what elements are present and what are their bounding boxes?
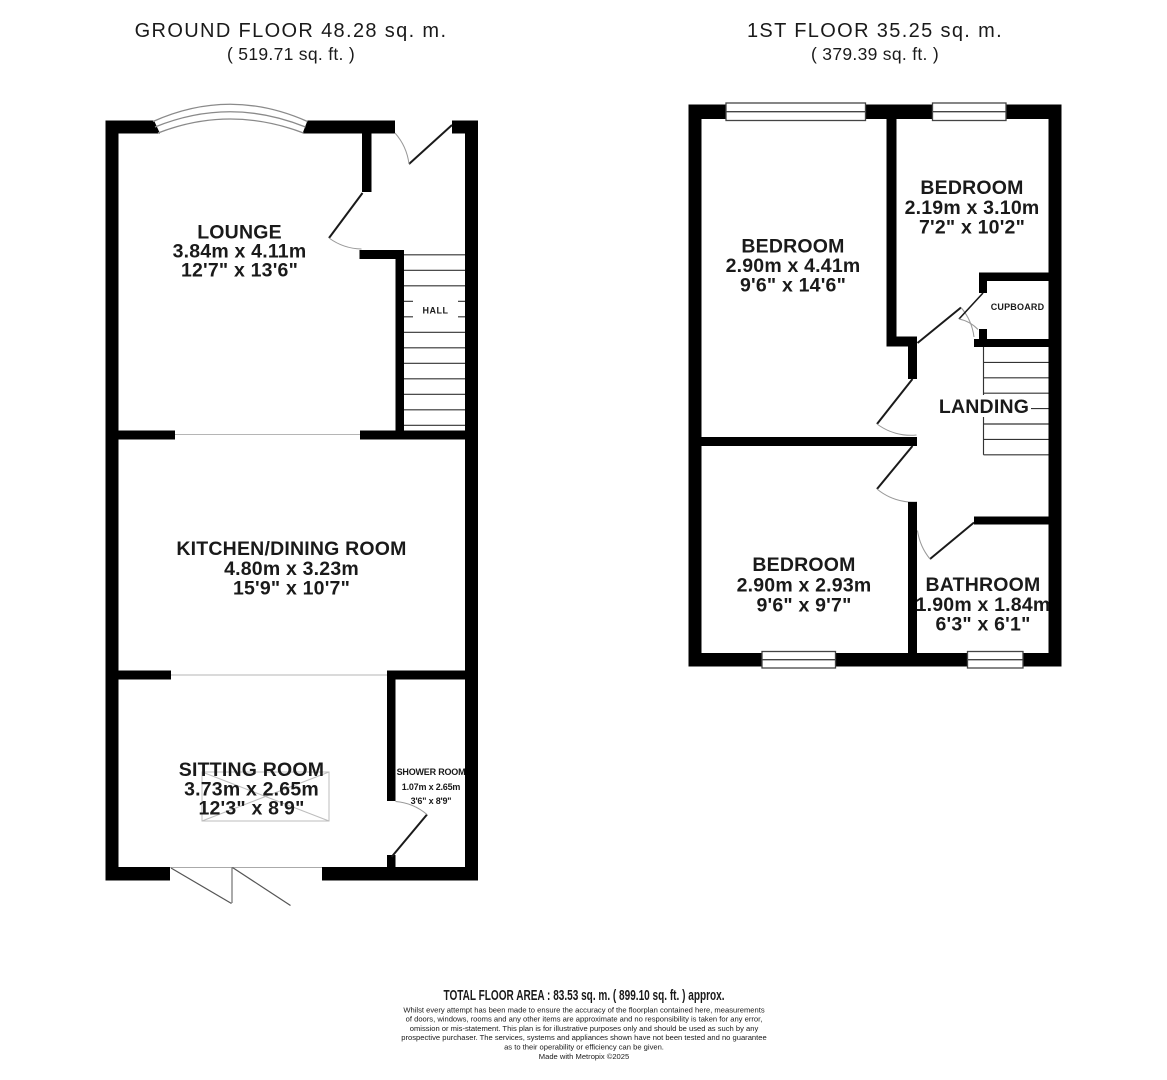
svg-text:Whilst every attempt has been: Whilst every attempt has been made to en…: [403, 1005, 765, 1014]
svg-text:15'9" x 10'7": 15'9" x 10'7": [233, 578, 350, 600]
svg-text:GROUND FLOOR 48.28 sq. m.: GROUND FLOOR 48.28 sq. m.: [135, 20, 448, 42]
svg-text:( 519.71 sq. ft. ): ( 519.71 sq. ft. ): [227, 44, 355, 64]
svg-text:LANDING: LANDING: [939, 396, 1029, 418]
svg-text:7'2" x 10'2": 7'2" x 10'2": [919, 217, 1025, 239]
svg-text:9'6" x 14'6": 9'6" x 14'6": [740, 275, 846, 297]
svg-text:1.07m x 2.65m: 1.07m x 2.65m: [402, 782, 461, 792]
svg-text:1ST FLOOR 35.25 sq. m.: 1ST FLOOR 35.25 sq. m.: [747, 20, 1003, 42]
svg-text:CUPBOARD: CUPBOARD: [991, 302, 1045, 312]
svg-text:12'3" x 8'9": 12'3" x 8'9": [198, 798, 304, 820]
svg-text:9'6" x 9'7": 9'6" x 9'7": [756, 595, 851, 617]
svg-text:HALL: HALL: [423, 306, 449, 316]
svg-text:2.90m x 2.93m: 2.90m x 2.93m: [737, 575, 872, 597]
svg-text:6'3" x 6'1": 6'3" x 6'1": [935, 614, 1030, 636]
svg-text:BATHROOM: BATHROOM: [926, 574, 1041, 596]
svg-text:SHOWER ROOM: SHOWER ROOM: [397, 767, 466, 777]
svg-text:BEDROOM: BEDROOM: [752, 554, 855, 576]
svg-text:TOTAL FLOOR AREA : 83.53 sq. m: TOTAL FLOOR AREA : 83.53 sq. m. ( 899.10…: [444, 988, 725, 1004]
svg-text:as to their operability or eff: as to their operability or efficiency ca…: [504, 1043, 664, 1052]
svg-text:12'7" x 13'6": 12'7" x 13'6": [181, 260, 298, 282]
svg-text:BEDROOM: BEDROOM: [920, 177, 1023, 199]
svg-text:omission or mis-statement. Thi: omission or mis-statement. This plan is …: [410, 1024, 759, 1033]
svg-text:Made with Metropix ©2025: Made with Metropix ©2025: [539, 1052, 629, 1061]
svg-text:3'6" x 8'9": 3'6" x 8'9": [411, 796, 452, 806]
svg-text:KITCHEN/DINING ROOM: KITCHEN/DINING ROOM: [176, 538, 406, 560]
svg-text:of doors, windows, rooms and a: of doors, windows, rooms and any other i…: [406, 1015, 763, 1024]
svg-text:( 379.39 sq. ft. ): ( 379.39 sq. ft. ): [811, 44, 939, 64]
svg-text:prospective purchaser. The ser: prospective purchaser. The services, sys…: [401, 1033, 766, 1042]
